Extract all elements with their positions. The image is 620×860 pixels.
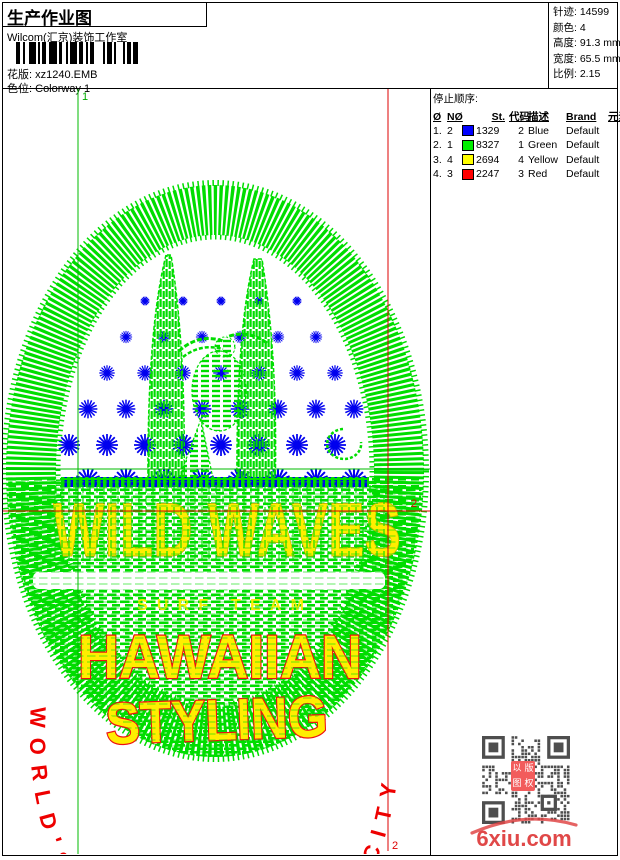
- col-stitches: St.: [462, 111, 509, 123]
- red-stamp: 以 版 图 权: [511, 761, 535, 791]
- col-element: 元素: [608, 109, 617, 124]
- guide-label-1: 1: [82, 91, 88, 103]
- watermark-site-text: 6xiu.com: [468, 826, 580, 852]
- height-row: 高度: 91.3 mm: [553, 36, 616, 52]
- color-swatch: [462, 169, 474, 180]
- watermark-logo: 6xiu.com: [468, 818, 580, 856]
- page-title: 生产作业图: [2, 2, 207, 27]
- table-row: 3.4 2694 4Yellow Default: [433, 153, 617, 168]
- table-row: 2.1 8327 1Green Default: [433, 138, 617, 153]
- palm-tree-left: [148, 255, 184, 494]
- color-swatch: [462, 154, 474, 165]
- table-row: 4.3 2247 3Red Default: [433, 167, 617, 182]
- stop-sequence-title: 停止顺序:: [433, 91, 617, 106]
- colors-row: 颜色: 4: [553, 21, 616, 37]
- guide-label-2-bottom: 2: [392, 840, 398, 852]
- color-swatch: [462, 125, 474, 136]
- production-worksheet: 生产作业图 Wilcom(汇京)装饰工作室 花版: xz1240.EMB 色位:…: [0, 0, 620, 860]
- ratio-row: 比例: 2.15: [553, 67, 616, 83]
- table-header-row: Ø NØ St. 代码 描述 Brand 元素: [433, 109, 617, 124]
- embroidery-design-canvas: WORLD'S GREATEST SURFING CITY WILD WAVES…: [3, 89, 430, 854]
- col-needle: NØ: [447, 111, 462, 123]
- design-stats-panel: 针迹: 14599 颜色: 4 高度: 91.3 mm 宽度: 65.5 mm …: [548, 2, 616, 88]
- color-swatch: [462, 140, 474, 151]
- col-code: 代码: [509, 109, 528, 124]
- stop-sequence-table: 停止顺序: Ø NØ St. 代码 描述 Brand 元素 1.2 1329 2…: [433, 91, 617, 182]
- table-row: 1.2 1329 2Blue Default: [433, 124, 617, 139]
- guide-label-2-right: 2: [411, 498, 417, 510]
- col-brand: Brand: [566, 111, 608, 123]
- col-order: Ø: [433, 111, 447, 123]
- barcode: [16, 42, 138, 64]
- panel-divider: [430, 89, 431, 855]
- stitches-row: 针迹: 14599: [553, 5, 616, 21]
- col-desc: 描述: [528, 109, 566, 124]
- width-row: 宽度: 65.5 mm: [553, 52, 616, 68]
